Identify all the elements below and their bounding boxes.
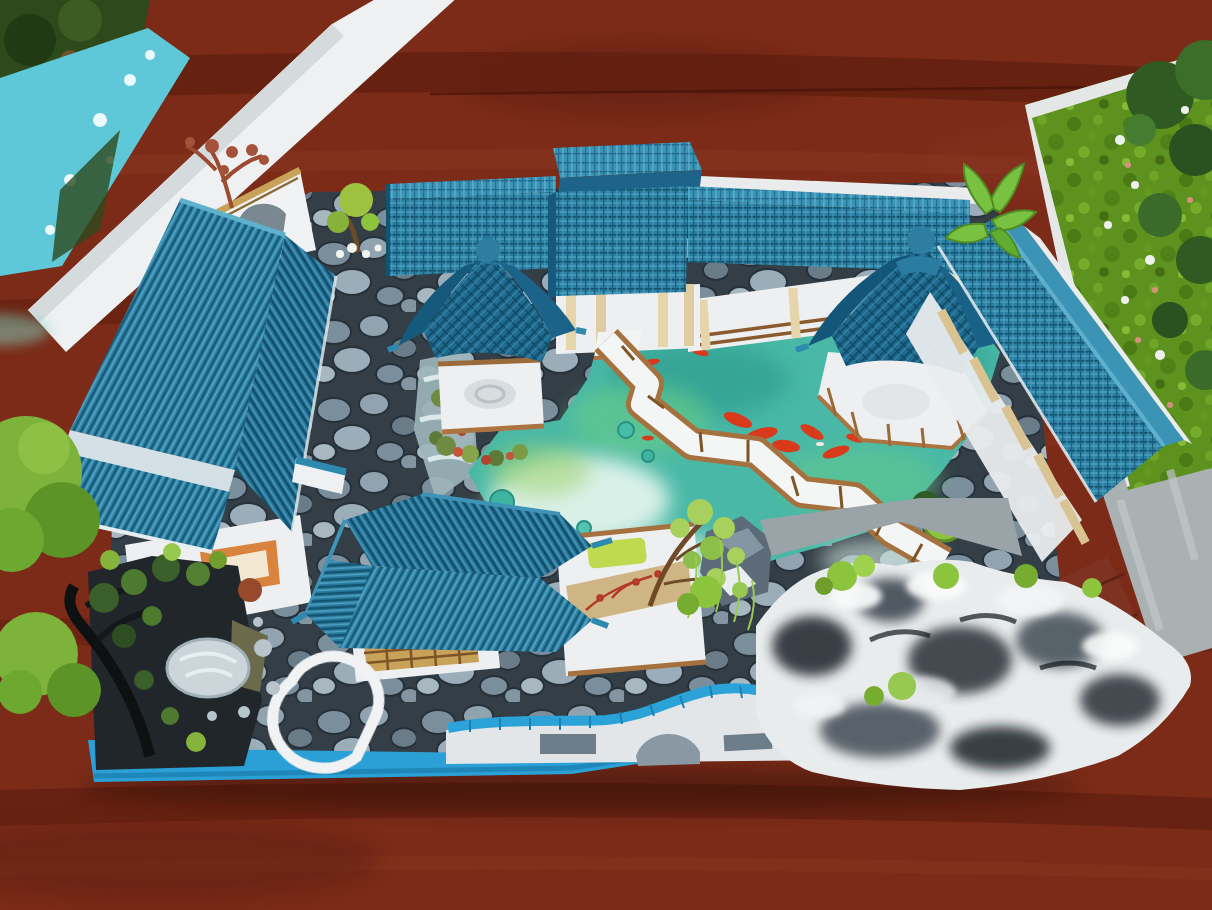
pavilion-finial (907, 226, 935, 254)
corridor-left-roof-face (388, 192, 556, 276)
gate-tower (548, 142, 702, 300)
gazebo-table (464, 379, 516, 409)
main-model (0, 137, 1192, 810)
moon-stone-disc (167, 639, 249, 697)
red-shrub (238, 578, 262, 602)
scene-canvas: const data = JSON.parse(document.getElem… (0, 0, 1212, 910)
wall-window-2 (724, 733, 773, 751)
photo-of-garden-model: const data = JSON.parse(document.getElem… (0, 0, 1212, 910)
gate-tower-face (556, 186, 688, 296)
wall-window-1 (540, 734, 596, 754)
